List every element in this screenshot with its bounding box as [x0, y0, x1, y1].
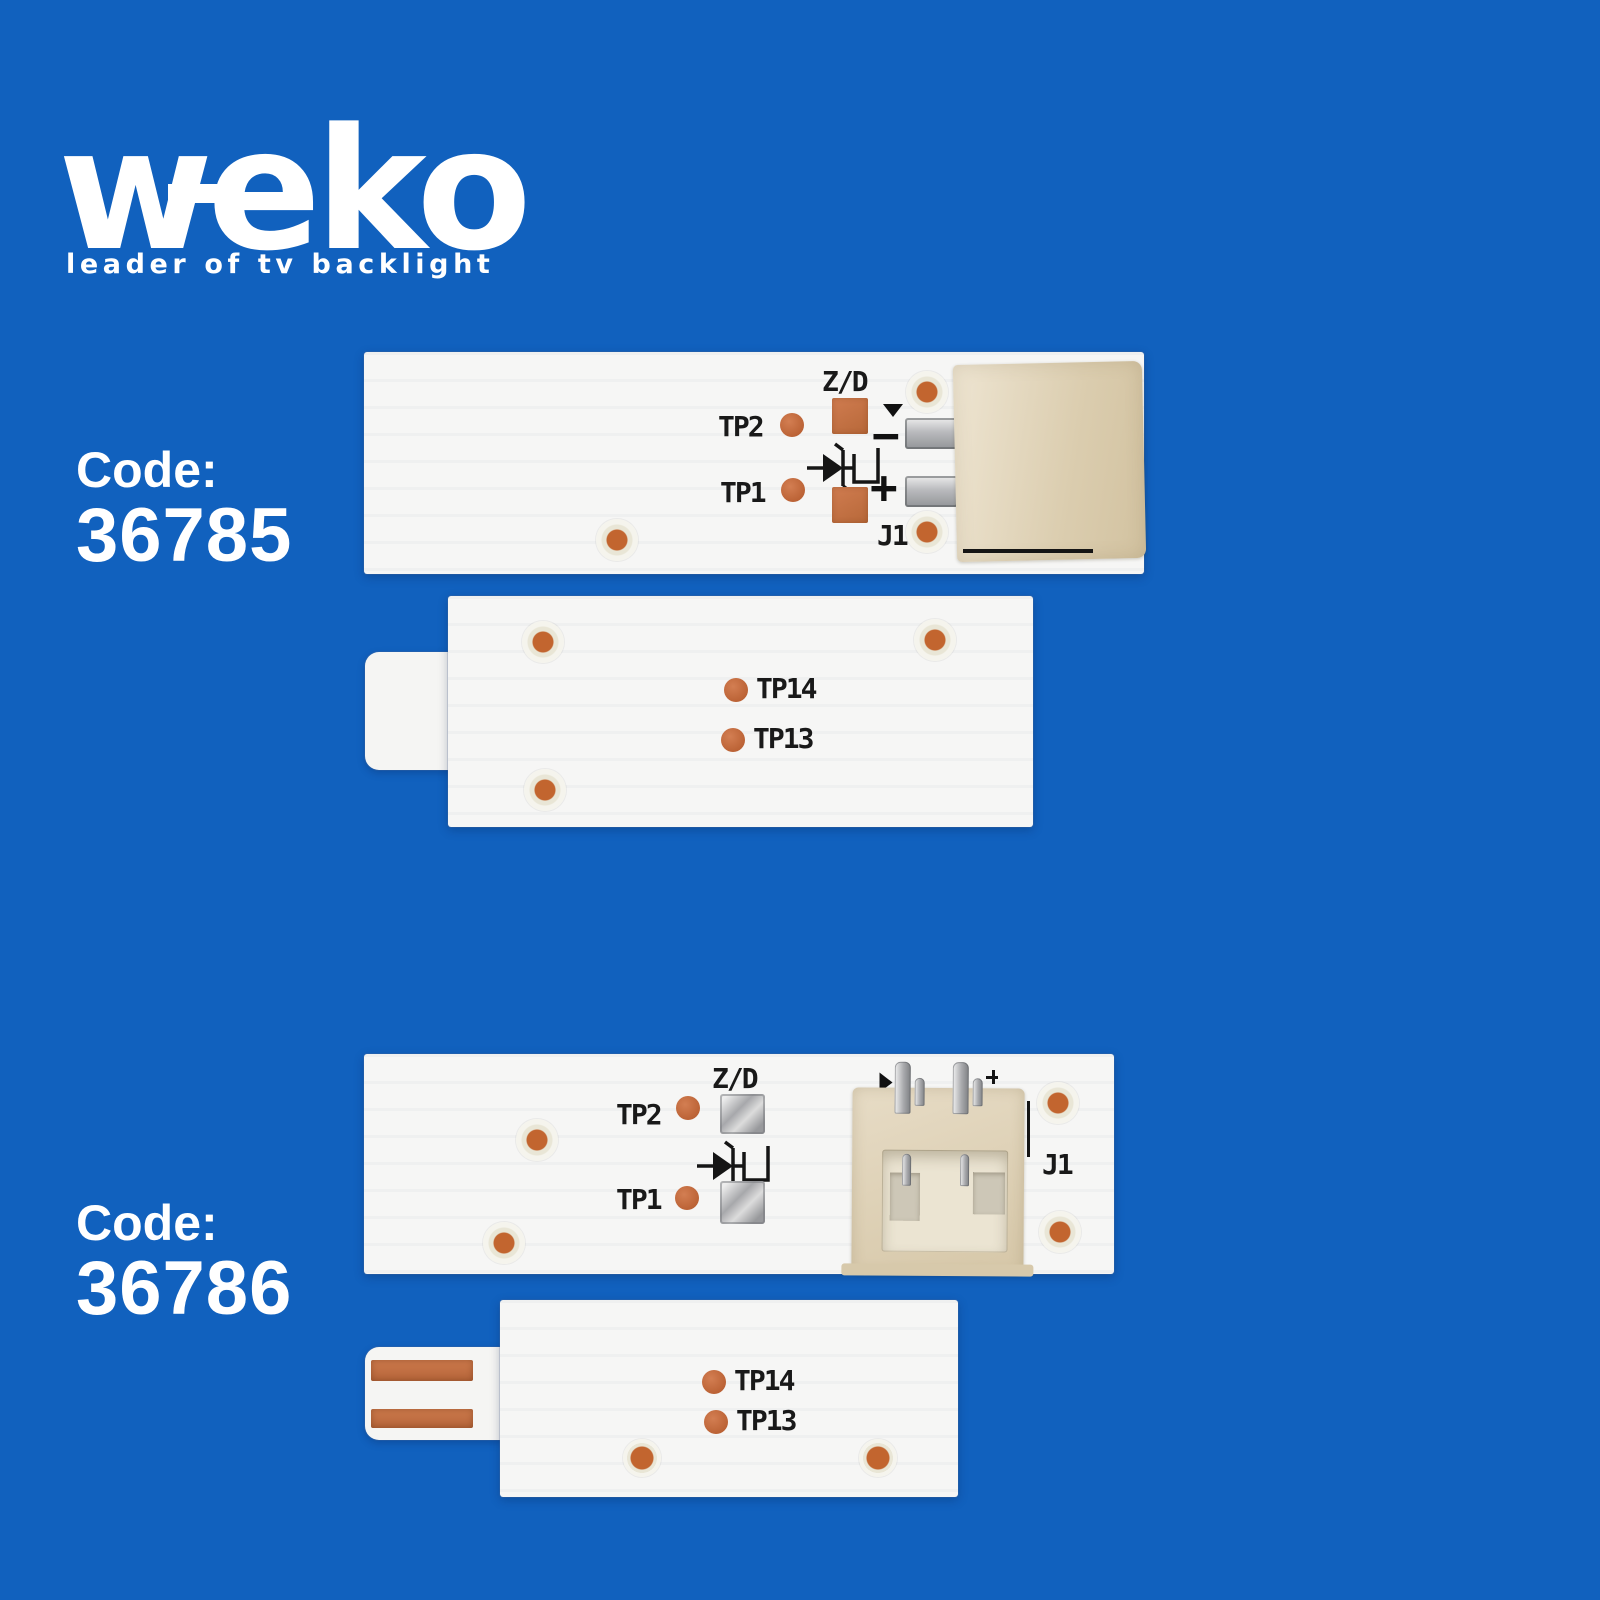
test-point-label-tp14: TP14: [756, 675, 815, 703]
connector-base-flange: [841, 1263, 1033, 1276]
connector-pin: [894, 1062, 910, 1114]
connector-pin-tail: [973, 1078, 983, 1106]
zener-diode-label: Z/D: [822, 368, 867, 396]
test-point-pad-tp1: [781, 478, 805, 502]
test-point-label-tp1: TP1: [616, 1186, 661, 1214]
silkscreen-line: [963, 549, 1093, 553]
connector-pin: [952, 1062, 968, 1114]
test-point-pad-tp2: [676, 1096, 700, 1120]
code-label: Code:: [76, 443, 292, 497]
test-point-pad-tp14: [724, 678, 748, 702]
connector-pin-tail: [915, 1078, 925, 1106]
led-strip-36786-tab: [365, 1347, 505, 1440]
wire-connector: [851, 1087, 1024, 1274]
mounting-hole-pad: [1037, 1082, 1079, 1124]
connector-designator-label: J1: [877, 522, 907, 550]
led-strip-36786-main: Z/D TP2 TP1 J1: [364, 1054, 1114, 1274]
mounting-hole-pad: [516, 1119, 558, 1161]
mounting-hole-pad: [483, 1222, 525, 1264]
copper-pad: [832, 398, 868, 434]
test-point-pad-tp2: [780, 413, 804, 437]
solder-terminal: [905, 418, 958, 449]
mounting-hole-pad: [522, 621, 564, 663]
test-point-label-tp14: TP14: [734, 1367, 793, 1395]
mounting-hole-pad: [906, 371, 948, 413]
test-point-pad-tp13: [704, 1410, 728, 1434]
connector-socket-cavity: [882, 1150, 1009, 1253]
product-code-block-2: Code: 36786: [76, 1196, 292, 1328]
product-code-block-1: Code: 36785: [76, 443, 292, 575]
silkscreen-mark: [992, 1070, 995, 1084]
solder-terminal: [905, 476, 958, 507]
mounting-hole-pad: [906, 511, 948, 553]
code-value: 36786: [76, 1250, 292, 1328]
wire-connector: [953, 361, 1146, 562]
code-label: Code:: [76, 1196, 292, 1250]
copper-trace: [371, 1409, 473, 1428]
led-strip-36786-secondary: TP14 TP13: [500, 1300, 958, 1497]
plus-symbol: +: [870, 464, 898, 510]
zener-diode-label: Z/D: [712, 1065, 757, 1093]
copper-trace: [371, 1360, 473, 1381]
logo-tagline: leader of tv backlight: [66, 249, 494, 280]
test-point-label-tp2: TP2: [616, 1101, 661, 1129]
solder-pad: [720, 1181, 765, 1224]
led-strip-36785-secondary: TP14 TP13: [448, 596, 1033, 827]
test-point-pad-tp13: [721, 728, 745, 752]
mounting-hole-pad: [859, 1439, 897, 1477]
weko-logo-ebar: [168, 184, 236, 203]
test-point-label-tp13: TP13: [736, 1407, 795, 1435]
test-point-pad-tp1: [675, 1186, 699, 1210]
mounting-hole-pad: [596, 519, 638, 561]
silkscreen-line: [1027, 1101, 1030, 1157]
socket-notch: [973, 1172, 1005, 1214]
mounting-hole-pad: [1039, 1211, 1081, 1253]
test-point-label-tp2: TP2: [718, 413, 763, 441]
led-strip-36785-tab: [365, 652, 455, 770]
test-point-label-tp1: TP1: [720, 479, 765, 507]
mounting-hole-pad: [623, 1439, 661, 1477]
solder-pad: [720, 1094, 765, 1134]
socket-pin: [902, 1154, 911, 1186]
test-point-pad-tp14: [702, 1370, 726, 1394]
test-point-label-tp13: TP13: [753, 725, 812, 753]
code-value: 36785: [76, 497, 292, 575]
mounting-hole-pad: [914, 619, 956, 661]
product-image-canvas: weko leader of tv backlight Code: 36785 …: [0, 0, 1600, 1600]
mounting-hole-pad: [524, 769, 566, 811]
led-strip-36785-main: Z/D TP2 − TP1 + J1: [364, 352, 1144, 574]
connector-designator-label: J1: [1042, 1151, 1072, 1179]
socket-pin: [960, 1154, 969, 1186]
copper-pad: [832, 487, 868, 523]
